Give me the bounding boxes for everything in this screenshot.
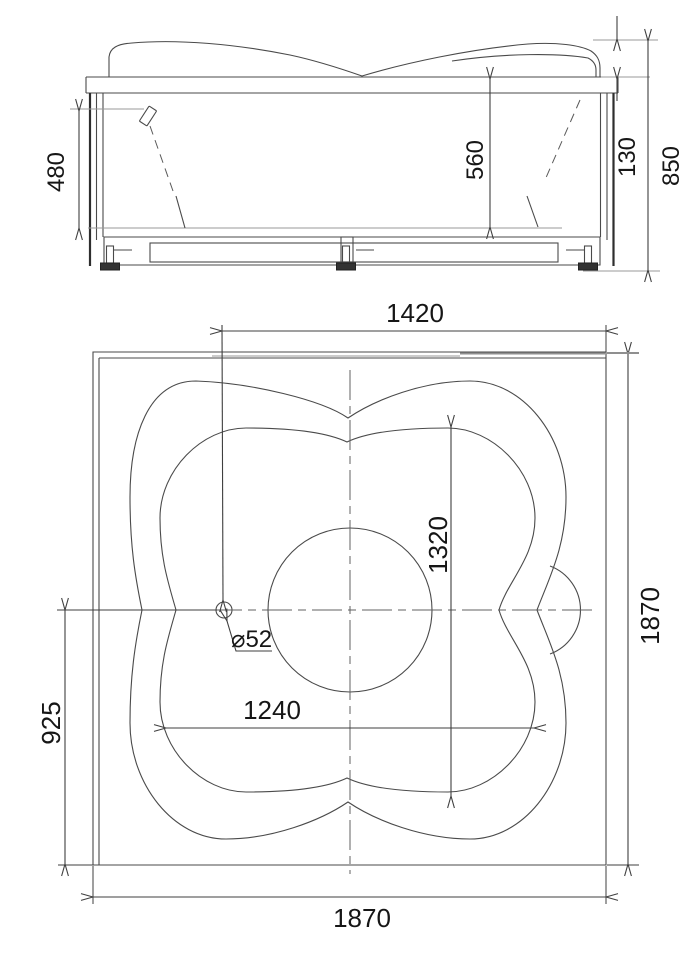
dim-label-1870-bottom: 1870: [333, 903, 391, 933]
dimension-1320: 1320: [423, 427, 453, 796]
drawing-svg: 480 560 130 850: [0, 0, 696, 965]
dimension-1870-right: 1870: [607, 353, 665, 865]
dim-label-1870-right: 1870: [635, 587, 665, 645]
side-elevation-view: 480 560 130 850: [43, 16, 685, 271]
wave-top-profile: [109, 42, 600, 77]
tub-body: [88, 93, 614, 266]
support-frame: [104, 237, 600, 265]
drain-callout: ⌀52: [227, 621, 272, 653]
dim-label-560: 560: [462, 140, 489, 180]
dimension-1870-bottom: 1870: [93, 866, 606, 933]
drain-diameter-label: ⌀52: [231, 626, 272, 653]
dimension-925: 925: [36, 610, 217, 865]
dim-label-1420: 1420: [386, 298, 444, 328]
dimension-480: 480: [43, 111, 79, 228]
interior-slope-right: [545, 100, 580, 180]
bathtub-technical-drawing: 480 560 130 850: [0, 0, 696, 965]
rim-deck: [86, 77, 618, 93]
plan-view: 1420 1320 1240 925 1870: [36, 298, 665, 933]
dim-label-480: 480: [43, 152, 70, 192]
dim-label-1240: 1240: [243, 695, 301, 725]
interior-slope-left: [150, 126, 173, 191]
pillow-inner-line: [452, 55, 596, 77]
dimension-560: 560: [462, 79, 490, 227]
dimension-1420: 1420: [222, 298, 606, 600]
dimension-850: 850: [648, 41, 685, 270]
dim-label-130: 130: [614, 137, 641, 177]
dim-label-925: 925: [36, 701, 66, 744]
dim-label-850: 850: [658, 146, 685, 186]
dim-label-1320: 1320: [423, 516, 453, 574]
